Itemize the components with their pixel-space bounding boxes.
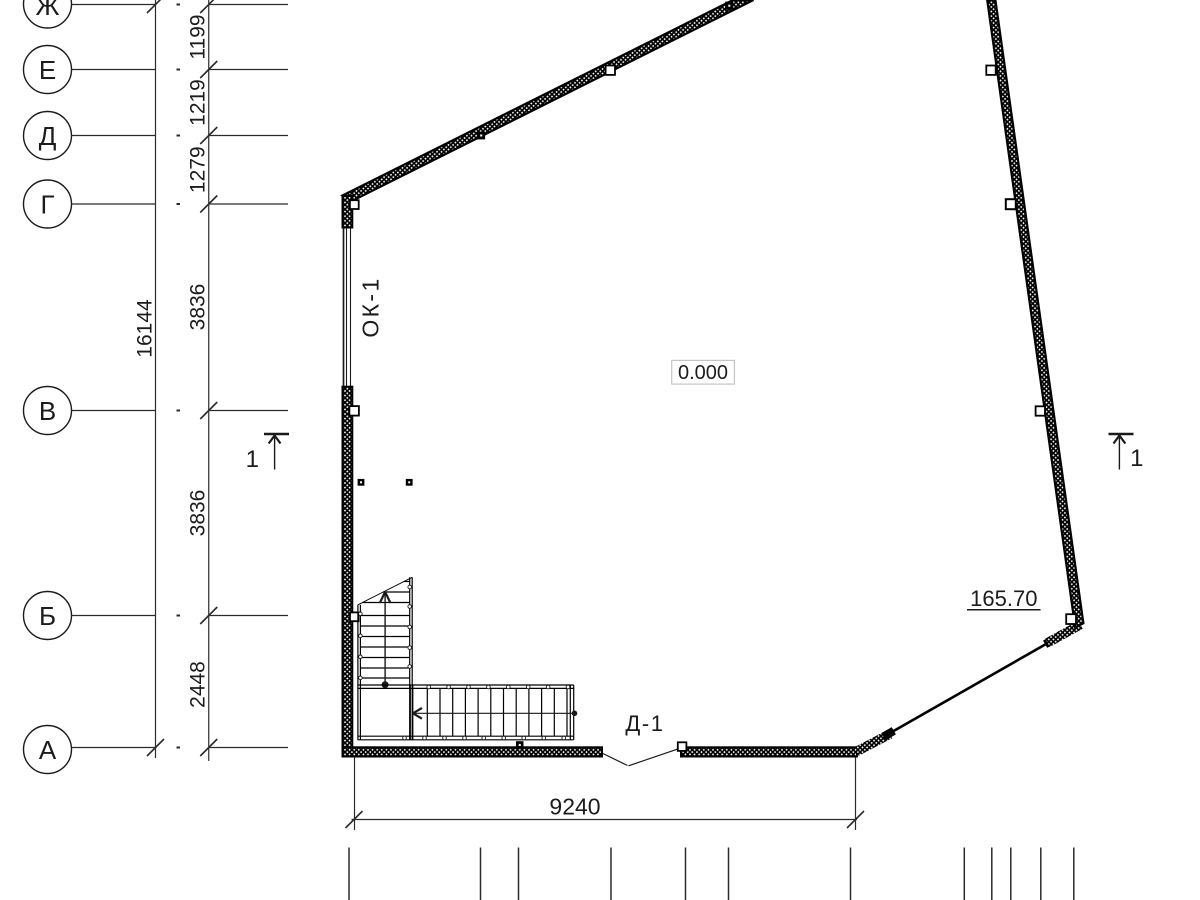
svg-text:1199: 1199 [186,14,209,59]
svg-text:ОК-1: ОК-1 [357,276,383,337]
svg-text:1: 1 [1130,445,1143,472]
svg-text:А: А [39,735,57,765]
svg-text:Б: Б [39,601,56,631]
svg-text:В: В [39,396,56,426]
svg-text:165.70: 165.70 [970,586,1037,611]
svg-text:9240: 9240 [549,794,600,820]
svg-text:3836: 3836 [186,284,209,331]
svg-text:1: 1 [246,446,259,473]
svg-text:2448: 2448 [186,661,209,708]
svg-text:Е: Е [39,55,56,85]
svg-text:1219: 1219 [186,79,209,126]
svg-text:1279: 1279 [186,146,209,193]
svg-text:Г: Г [40,190,54,220]
svg-text:Ж: Ж [35,0,59,21]
svg-text:0.000: 0.000 [678,362,728,384]
svg-text:16144: 16144 [134,299,157,358]
svg-text:Д: Д [39,121,57,151]
svg-text:3836: 3836 [186,490,209,537]
svg-text:Д-1: Д-1 [625,711,664,736]
